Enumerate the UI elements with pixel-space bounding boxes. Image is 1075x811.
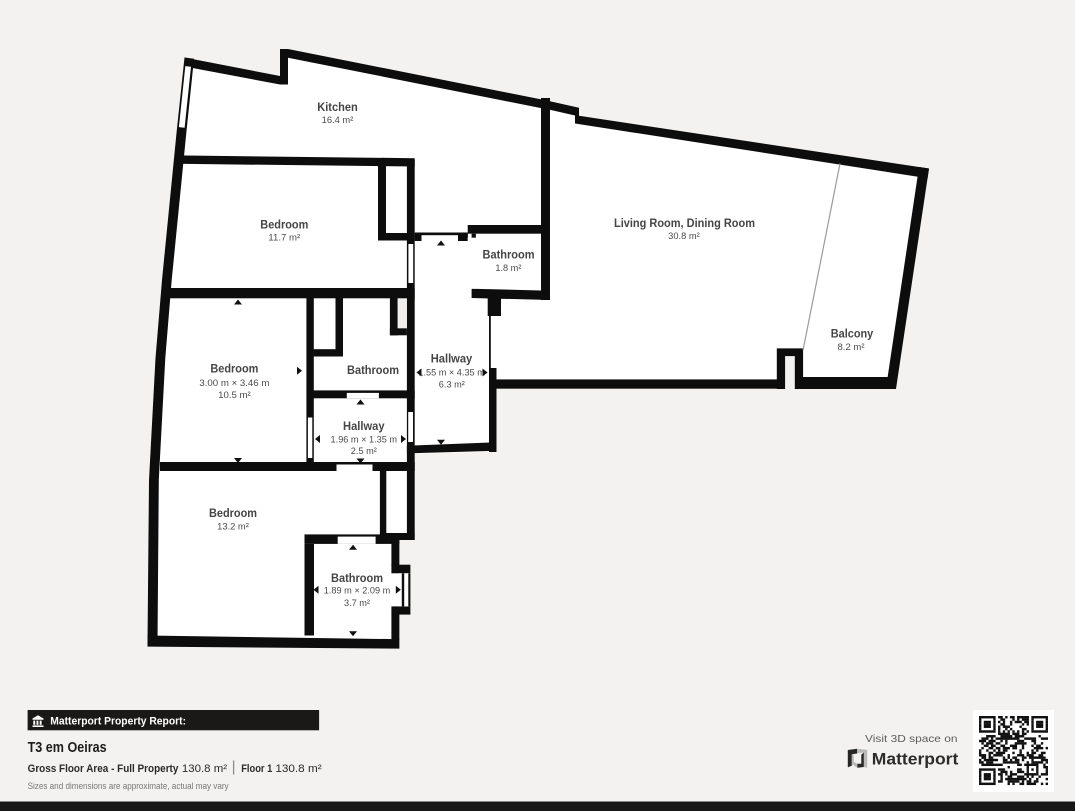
svg-text:30.8 m²: 30.8 m² [668, 231, 700, 241]
svg-text:Floor 1: Floor 1 [241, 763, 273, 775]
svg-text:1.96 m × 1.35 m: 1.96 m × 1.35 m [331, 435, 398, 445]
svg-text:3.00 m × 3.46 m: 3.00 m × 3.46 m [199, 378, 269, 388]
svg-text:Bedroom: Bedroom [210, 361, 258, 375]
svg-text:1.8 m²: 1.8 m² [495, 263, 521, 273]
svg-text:11.7 m²: 11.7 m² [268, 233, 300, 243]
svg-text:Matterport: Matterport [872, 750, 959, 768]
svg-text:Hallway: Hallway [343, 419, 385, 433]
svg-text:3.7 m²: 3.7 m² [344, 598, 370, 608]
svg-text:16.4 m²: 16.4 m² [322, 115, 354, 125]
svg-text:10.5 m²: 10.5 m² [218, 390, 251, 400]
svg-text:Living Room, Dining Room: Living Room, Dining Room [614, 216, 755, 230]
svg-text:Balcony: Balcony [831, 327, 874, 341]
svg-text:Bedroom: Bedroom [209, 506, 257, 520]
svg-text:Bathroom: Bathroom [347, 363, 399, 377]
svg-text:1.55 m × 4.35 m: 1.55 m × 4.35 m [418, 368, 485, 378]
svg-text:130.8 m²: 130.8 m² [182, 763, 227, 775]
svg-text:Visit 3D space on: Visit 3D space on [865, 733, 958, 745]
svg-text:Bedroom: Bedroom [260, 217, 308, 231]
svg-text:6.3 m²: 6.3 m² [439, 380, 465, 390]
svg-text:Hallway: Hallway [431, 352, 473, 366]
svg-text:2.5 m²: 2.5 m² [351, 446, 377, 456]
svg-text:1.89 m × 2.09 m: 1.89 m × 2.09 m [324, 585, 391, 595]
svg-text:Sizes and dimensions are appro: Sizes and dimensions are approximate, ac… [28, 781, 230, 791]
svg-text:Gross Floor Area - Full Proper: Gross Floor Area - Full Property [28, 763, 179, 775]
svg-text:130.8 m²: 130.8 m² [275, 763, 321, 775]
svg-text:Matterport Property Report:: Matterport Property Report: [50, 716, 186, 728]
svg-text:Kitchen: Kitchen [317, 100, 358, 114]
svg-text:T3 em Oeiras: T3 em Oeiras [28, 740, 107, 756]
svg-text:13.2 m²: 13.2 m² [217, 522, 249, 532]
svg-text:8.2 m²: 8.2 m² [838, 342, 865, 352]
svg-text:Bathroom: Bathroom [331, 571, 383, 585]
svg-text:Bathroom: Bathroom [483, 248, 535, 262]
